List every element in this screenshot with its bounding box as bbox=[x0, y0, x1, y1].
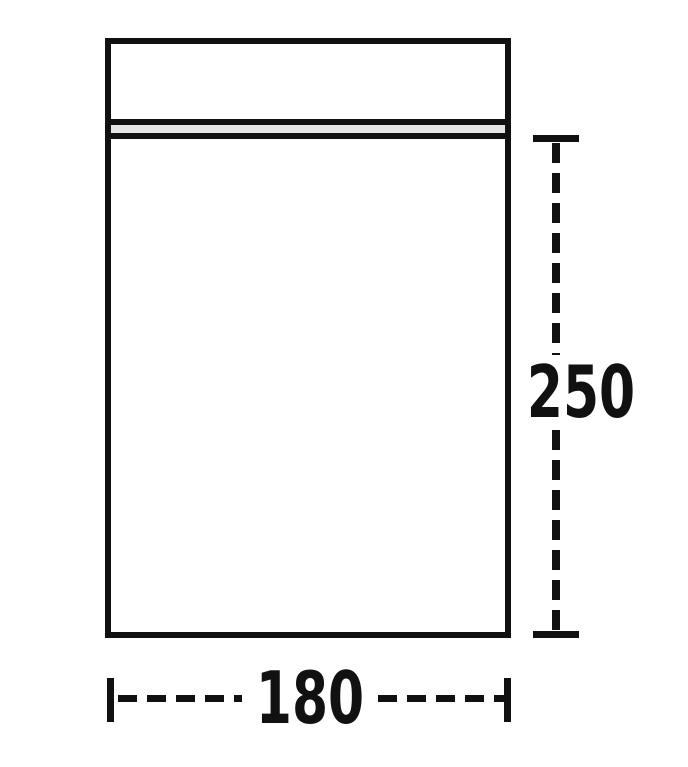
height-dimension-cap-bottom bbox=[533, 631, 579, 638]
width-dimension-label: 180 bbox=[256, 662, 364, 734]
zipper-seal-strip bbox=[111, 119, 505, 139]
height-dimension-cap-top bbox=[533, 135, 579, 142]
width-dimension-dash-right bbox=[378, 695, 505, 702]
diagram-canvas: 250 180 bbox=[0, 0, 688, 767]
bag-outline bbox=[105, 38, 511, 638]
height-dimension-label: 250 bbox=[527, 356, 635, 428]
width-dimension-tick-right bbox=[504, 678, 511, 722]
height-dimension-dash-lower bbox=[552, 430, 560, 630]
width-dimension-dash-left bbox=[118, 695, 242, 702]
height-dimension-dash-upper bbox=[552, 143, 560, 355]
width-dimension-tick-left bbox=[107, 678, 114, 722]
